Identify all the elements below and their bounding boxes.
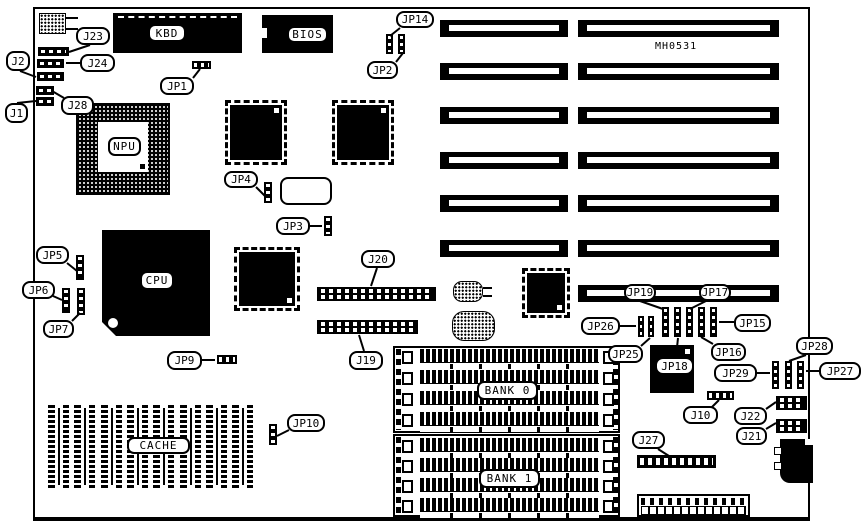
bank1-clip-left-3: [402, 480, 413, 493]
callout-jp5: JP5: [36, 246, 69, 264]
callout-jp18: JP18: [655, 357, 694, 375]
chip-dot: [274, 108, 279, 113]
bank1-clip-right-3: [603, 480, 614, 493]
isa-slot-left-3: [440, 107, 568, 124]
kbd-label: KBD: [148, 24, 186, 42]
callout-jp1: JP1: [160, 77, 194, 95]
bank0-rail-left: [396, 349, 401, 430]
callout-jp7: JP7: [43, 320, 74, 338]
header-j20: [317, 287, 436, 301]
chip-dot: [685, 349, 690, 354]
cache-chip-8: [232, 405, 253, 488]
bank0-simm-1: [420, 349, 599, 369]
bank0-clip-right-3: [603, 393, 614, 406]
callout-j24: J24: [80, 54, 115, 72]
bank0-clip-right-4: [603, 414, 614, 427]
header-j23: [38, 47, 69, 56]
power-connector: [637, 494, 750, 517]
motherboard-diagram: KBD BIOS NPU CPU CACHE BANK 0 BANK 1 MH0…: [0, 0, 867, 527]
callout-jp17: JP17: [699, 284, 731, 301]
callout-jp9: JP9: [167, 351, 202, 370]
jumper-jp28: [785, 361, 792, 389]
header-j19: [317, 320, 418, 334]
isa-slot-left-1: [440, 20, 568, 37]
header-j28: [36, 86, 54, 95]
jumper-jp5: [76, 255, 84, 280]
isa-slot-right-1: [578, 20, 779, 37]
bank1-label: BANK 1: [479, 469, 540, 488]
callout-jp2: JP2: [367, 61, 398, 79]
keyboard-din-connector: [780, 439, 813, 483]
qfp-chip-1: [225, 100, 287, 165]
cpu-pin1-dot: [108, 318, 118, 328]
din-pin: [774, 447, 782, 455]
jumper-j10: [707, 391, 734, 400]
jumper-jp17: [686, 307, 693, 337]
isa-slot-left-5: [440, 195, 568, 212]
callout-j21: J21: [736, 427, 767, 445]
bank1-clip-left-2: [402, 460, 413, 473]
callout-jp28: JP28: [796, 337, 833, 355]
header-j2: [37, 72, 64, 81]
callout-jp16: JP16: [711, 343, 746, 361]
component-blob: [452, 311, 495, 341]
header-j27: [637, 455, 716, 468]
chip-dot: [287, 298, 292, 303]
jumper-jp3: [324, 216, 332, 236]
cache-chip-2: [74, 405, 95, 488]
header-j22: [776, 396, 807, 410]
jumper-jp26: [638, 316, 644, 337]
callout-jp4: JP4: [224, 171, 258, 188]
callout-jp19: JP19: [624, 284, 656, 301]
clock-chip: [39, 13, 66, 34]
callout-j23: J23: [76, 27, 110, 45]
callout-jp6: JP6: [22, 281, 55, 299]
isa-slot-right-5: [578, 195, 779, 212]
header-j24: [37, 59, 64, 68]
header-j1: [36, 97, 54, 106]
bank1-clip-right-1: [603, 440, 614, 453]
bank0-label: BANK 0: [477, 381, 538, 400]
jumper-jp18: [674, 307, 681, 337]
callout-jp26: JP26: [581, 317, 620, 335]
isa-slot-right-2: [578, 63, 779, 80]
callout-j19: J19: [349, 351, 383, 370]
bank0-clip-left-1: [402, 351, 413, 364]
jumper-jp9: [217, 355, 237, 364]
jumper-jp29: [772, 361, 779, 389]
callout-jp15: JP15: [734, 314, 771, 332]
npu-label: NPU: [108, 137, 141, 156]
bank1-rail-left: [396, 437, 401, 514]
callout-jp29: JP29: [714, 364, 757, 382]
board-model-number: MH0531: [655, 41, 697, 52]
bank0-clip-left-2: [402, 372, 413, 385]
oscillator: [280, 177, 332, 205]
jumper-jp25: [648, 316, 654, 337]
isa-slot-left-2: [440, 63, 568, 80]
bank1-simm-1: [420, 438, 599, 458]
crystal: [453, 281, 483, 302]
jumper-jp14-b: [398, 34, 405, 54]
cache-chip-7: [206, 405, 227, 488]
callout-j2: J2: [6, 51, 30, 71]
callout-jp10: JP10: [287, 414, 325, 432]
callout-jp25: JP25: [608, 345, 643, 363]
callout-j22: J22: [734, 407, 767, 425]
cpu-label: CPU: [140, 271, 174, 290]
callout-j28: J28: [61, 96, 94, 115]
isa-slot-left-4: [440, 152, 568, 169]
jumper-jp15: [710, 307, 717, 337]
jumper-jp27: [797, 361, 804, 389]
din-pin: [774, 462, 782, 470]
bank0-simm-4: [420, 412, 599, 432]
cache-chip-3: [101, 405, 122, 488]
bios-label: BIOS: [287, 26, 328, 43]
bank1-clip-right-4: [603, 500, 614, 513]
qfp-chip-3: [234, 247, 300, 311]
callout-j1: J1: [5, 103, 28, 123]
callout-jp27: JP27: [819, 362, 861, 380]
jumper-jp7: [77, 288, 85, 315]
bank1-simm-4: [420, 498, 599, 518]
qfp-chip-4: [522, 268, 570, 318]
bank1-clip-left-4: [402, 500, 413, 513]
chip-dot: [381, 108, 386, 113]
jumper-jp10: [269, 424, 277, 445]
chip-dot: [557, 305, 562, 310]
qfp-chip-2: [332, 100, 394, 165]
isa-slot-right-3: [578, 107, 779, 124]
jumper-jp4: [264, 182, 272, 203]
jumper-jp1: [192, 61, 211, 69]
bank1-clip-left-1: [402, 440, 413, 453]
callout-jp3: JP3: [276, 217, 310, 235]
jumper-jp19: [662, 307, 669, 337]
callout-jp14: JP14: [396, 11, 434, 28]
isa-slot-left-6: [440, 240, 568, 257]
callout-j27: J27: [632, 431, 665, 449]
jumper-jp14-a: [386, 34, 393, 54]
callout-j10: J10: [683, 406, 718, 424]
isa-slot-right-7: [578, 285, 779, 302]
npu-pin1-marker: [140, 164, 145, 169]
isa-slot-right-6: [578, 240, 779, 257]
bank0-clip-left-3: [402, 393, 413, 406]
jumper-jp16: [698, 307, 705, 337]
jumper-jp6: [62, 288, 70, 313]
bank0-clip-right-2: [603, 372, 614, 385]
callout-j20: J20: [361, 250, 395, 268]
bank1-clip-right-2: [603, 460, 614, 473]
isa-slot-right-4: [578, 152, 779, 169]
cache-label: CACHE: [127, 437, 190, 454]
cache-chip-1: [48, 405, 69, 488]
header-j21: [776, 419, 807, 433]
bank0-clip-left-4: [402, 414, 413, 427]
